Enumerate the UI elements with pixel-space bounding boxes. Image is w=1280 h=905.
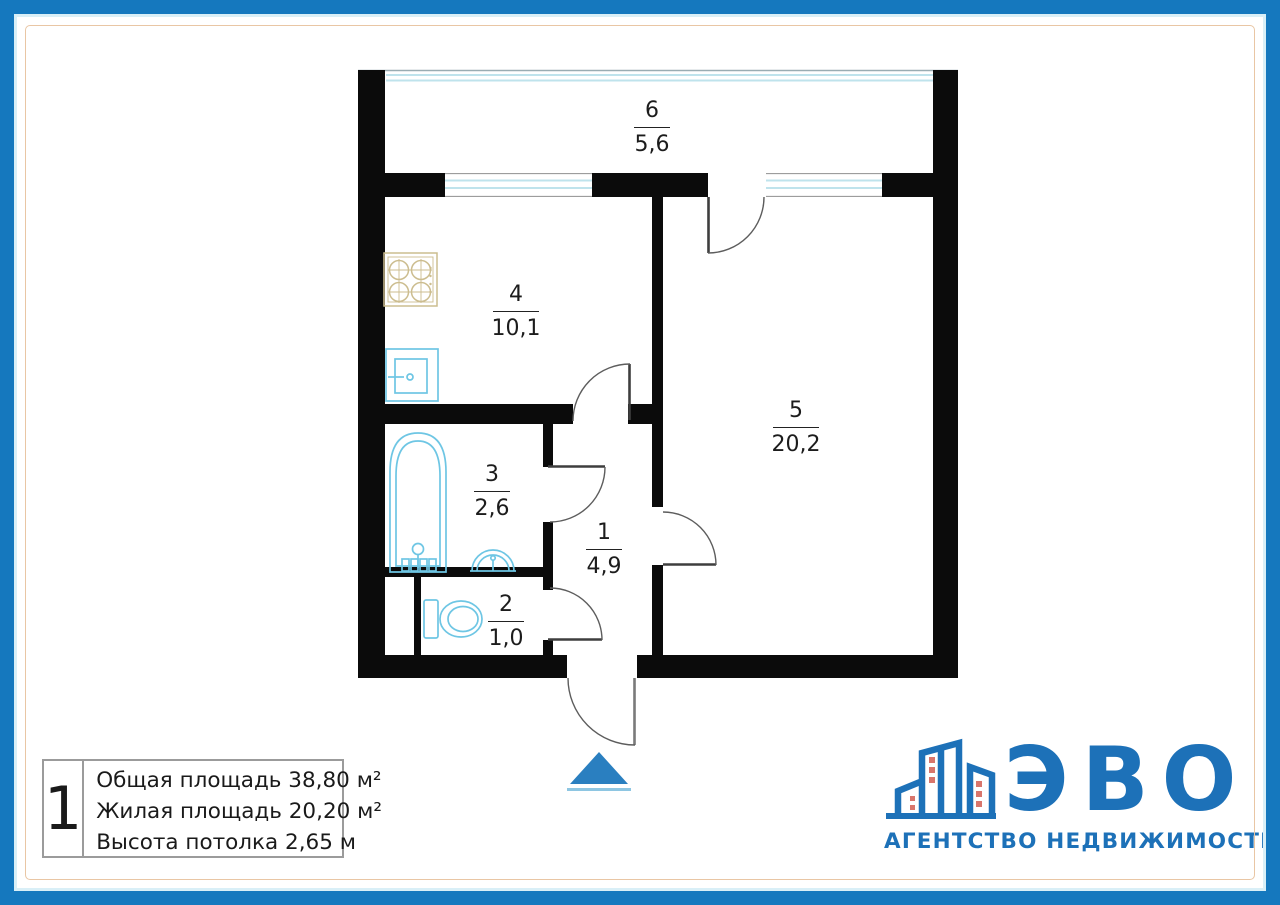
room-number: 5 (756, 400, 836, 427)
room-area: 4,9 (564, 550, 644, 578)
room-area: 1,0 (466, 622, 546, 650)
bath-sink-icon (470, 550, 516, 571)
room-number: 4 (476, 284, 556, 311)
room-number: 3 (452, 464, 532, 491)
bathroom-door (548, 467, 605, 523)
room-label-hallway: 1 4,9 (564, 522, 644, 578)
entrance-door (568, 678, 635, 745)
logo-name: ЭВО (1004, 740, 1249, 821)
agency-logo: ЭВО АГЕНТСТВО НЕДВИЖИМОСТИ (884, 735, 1252, 854)
room-number: 1 (564, 522, 644, 549)
interior-walls (385, 197, 663, 655)
balcony-glazing (358, 71, 958, 81)
logo-tagline: АГЕНТСТВО НЕДВИЖИМОСТИ (884, 829, 1252, 854)
ceiling-height-line: Высота потолка 2,65 м (96, 827, 382, 858)
kitchen-door (573, 364, 630, 421)
living-area-line: Жилая площадь 20,20 м² (96, 796, 382, 827)
room-area: 5,6 (612, 128, 692, 156)
room-label-bathroom: 3 2,6 (452, 464, 532, 520)
wc-door (548, 588, 602, 640)
balcony-door (708, 197, 764, 253)
livingroom-window (766, 174, 882, 197)
room-label-wc: 2 1,0 (466, 594, 546, 650)
plan-number: 1 (44, 761, 84, 856)
room-area: 20,2 (756, 428, 836, 456)
room-number: 2 (466, 594, 546, 621)
balcony-separating-wall (385, 173, 933, 197)
entrance-arrow-icon (567, 752, 631, 790)
buildings-icon (884, 735, 998, 821)
total-area-line: Общая площадь 38,80 м² (96, 765, 382, 796)
room-label-balcony: 6 5,6 (612, 100, 692, 156)
stove-icon (384, 253, 437, 306)
bathtub-icon (390, 433, 446, 572)
livingroom-door (663, 512, 716, 565)
room-number: 6 (612, 100, 692, 127)
plan-info-table: 1 Общая площадь 38,80 м² Жилая площадь 2… (42, 759, 344, 858)
plan-info-lines: Общая площадь 38,80 м² Жилая площадь 20,… (84, 761, 382, 856)
room-label-kitchen: 4 10,1 (476, 284, 556, 340)
room-label-livingroom: 5 20,2 (756, 400, 836, 456)
room-area: 2,6 (452, 492, 532, 520)
room-area: 10,1 (476, 312, 556, 340)
kitchen-window (445, 174, 592, 197)
floor-plan-page: { "plan": { "rooms": { "r1": { "number":… (0, 0, 1280, 905)
kitchen-sink-icon (386, 349, 438, 401)
